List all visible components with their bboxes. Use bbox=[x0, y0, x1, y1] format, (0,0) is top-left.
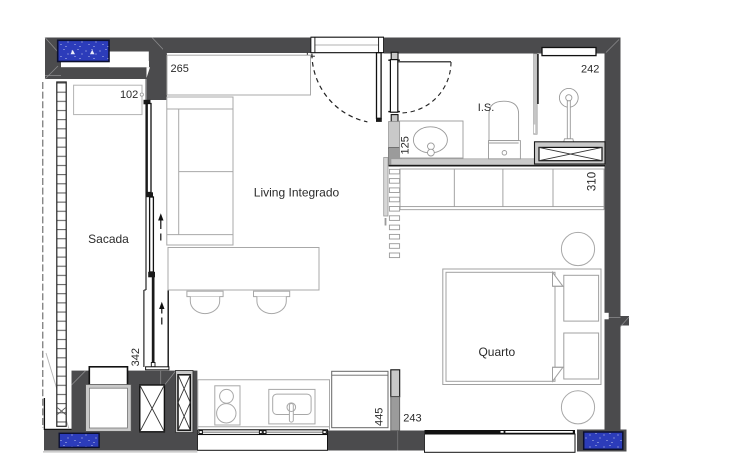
svg-text:Quarto: Quarto bbox=[478, 345, 515, 359]
svg-text:265: 265 bbox=[171, 63, 189, 75]
svg-text:445: 445 bbox=[374, 408, 386, 426]
svg-text:243: 243 bbox=[403, 412, 421, 424]
svg-text:I.S.: I.S. bbox=[478, 102, 495, 114]
svg-text:Living Integrado: Living Integrado bbox=[254, 186, 340, 200]
svg-text:Sacada: Sacada bbox=[88, 232, 129, 246]
svg-text:242: 242 bbox=[581, 63, 599, 75]
svg-text:102: 102 bbox=[120, 89, 138, 101]
svg-text:342: 342 bbox=[130, 348, 142, 366]
svg-text:310: 310 bbox=[586, 172, 598, 191]
svg-text:125: 125 bbox=[399, 136, 411, 154]
